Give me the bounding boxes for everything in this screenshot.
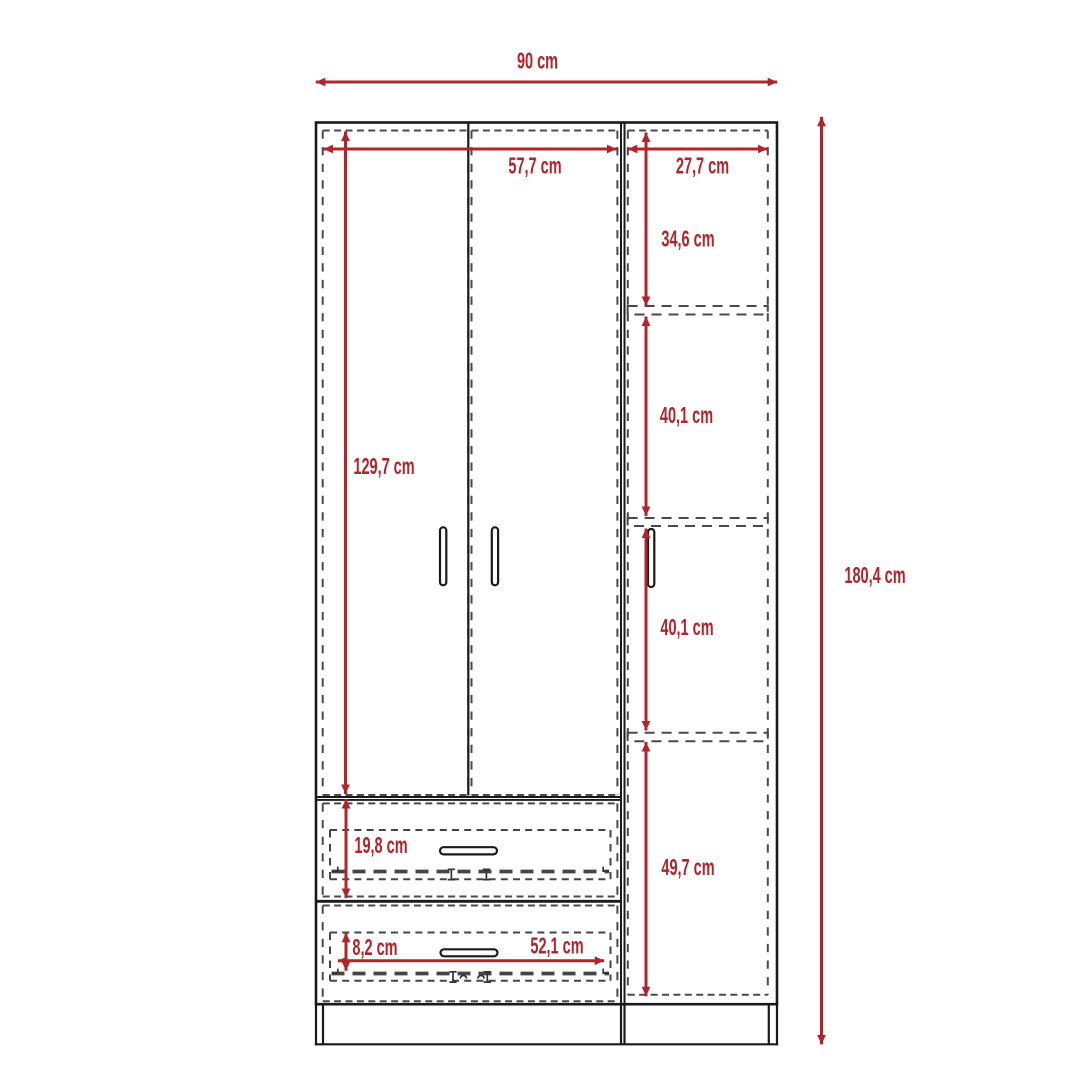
svg-text:27,7 cm: 27,7 cm bbox=[676, 153, 729, 179]
svg-text:40,1 cm: 40,1 cm bbox=[660, 615, 713, 641]
svg-text:49,7 cm: 49,7 cm bbox=[661, 855, 714, 881]
svg-text:180,4 cm: 180,4 cm bbox=[844, 563, 905, 589]
svg-text:19,8 cm: 19,8 cm bbox=[354, 833, 407, 859]
svg-text:8,2 cm: 8,2 cm bbox=[352, 935, 397, 961]
svg-text:57,7 cm: 57,7 cm bbox=[508, 153, 561, 179]
svg-text:40,1 cm: 40,1 cm bbox=[660, 403, 713, 429]
svg-text:129,7 cm: 129,7 cm bbox=[353, 453, 414, 479]
svg-text:34,6 cm: 34,6 cm bbox=[661, 226, 714, 252]
svg-text:90 cm: 90 cm bbox=[517, 48, 558, 74]
svg-text:52,1 cm: 52,1 cm bbox=[530, 933, 583, 959]
